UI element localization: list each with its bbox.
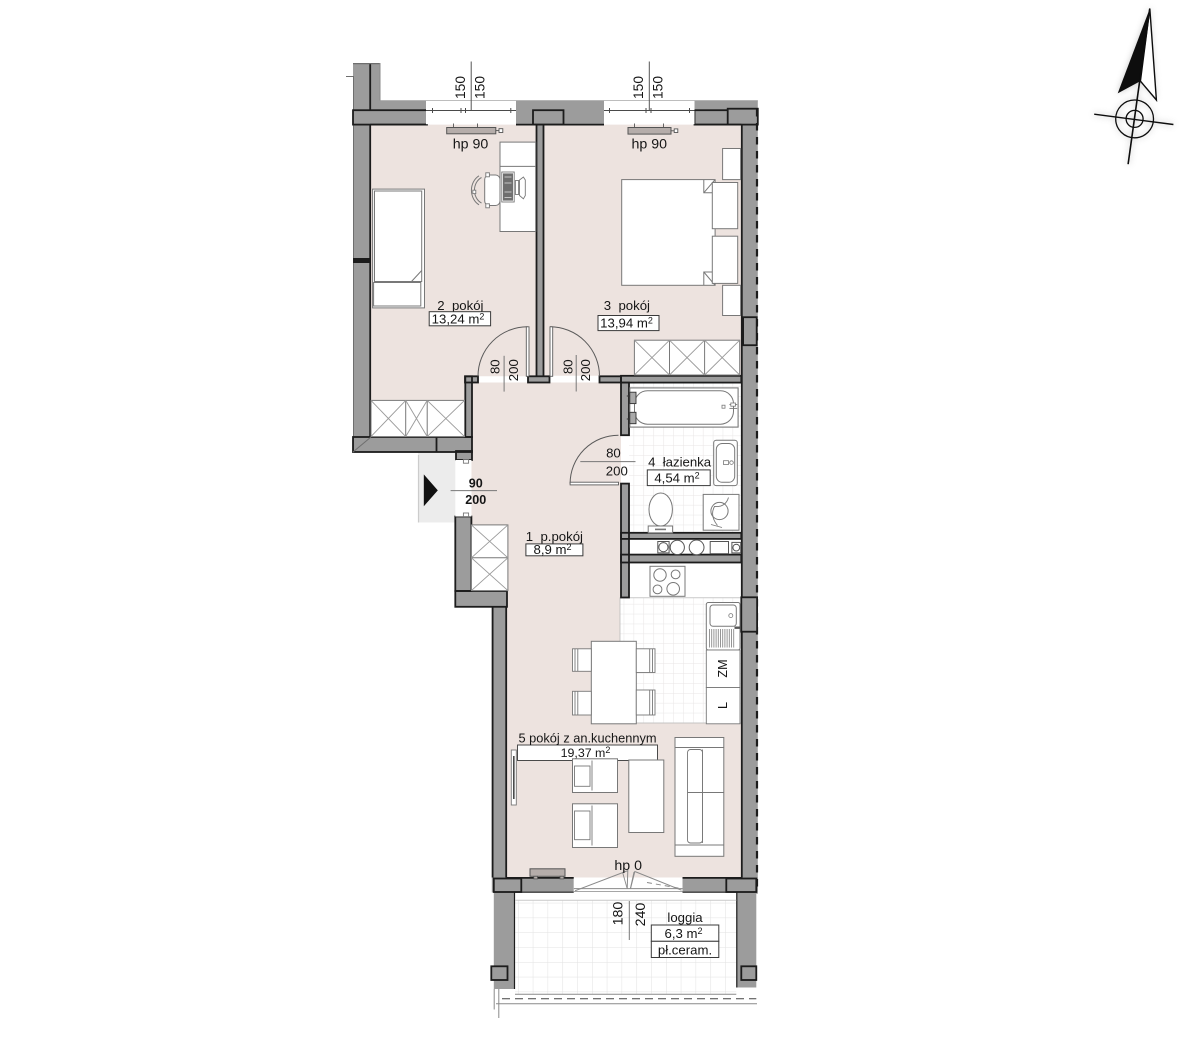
svg-text:200: 200: [506, 359, 521, 381]
svg-text:240: 240: [633, 903, 649, 927]
svg-text:90: 90: [469, 476, 483, 490]
svg-text:200: 200: [465, 493, 486, 507]
svg-text:150: 150: [473, 76, 488, 99]
svg-text:hp 0: hp 0: [614, 858, 642, 874]
svg-text:4 łazienka: 4 łazienka: [648, 454, 712, 469]
svg-text:3 pokój: 3 pokój: [604, 298, 650, 313]
svg-text:loggia: loggia: [667, 910, 703, 925]
svg-text:ZM: ZM: [716, 659, 730, 677]
svg-text:L: L: [716, 702, 730, 709]
svg-text:13,94 m2: 13,94 m2: [600, 316, 653, 331]
svg-text:hp 90: hp 90: [632, 137, 668, 153]
svg-text:pł.ceram.: pł.ceram.: [658, 942, 712, 957]
svg-text:8,9 m2: 8,9 m2: [534, 542, 572, 557]
svg-text:150: 150: [651, 76, 666, 99]
svg-text:19,37 m2: 19,37 m2: [561, 745, 611, 760]
svg-text:180: 180: [610, 902, 626, 926]
svg-text:4,54 m2: 4,54 m2: [654, 470, 699, 485]
svg-text:200: 200: [606, 463, 628, 478]
svg-text:80: 80: [606, 445, 621, 460]
svg-text:200: 200: [578, 359, 593, 381]
svg-text:6,3 m2: 6,3 m2: [665, 926, 703, 941]
svg-text:150: 150: [453, 76, 468, 99]
svg-text:5 pokój z an.kuchennym: 5 pokój z an.kuchennym: [519, 730, 657, 745]
svg-text:150: 150: [631, 76, 646, 99]
svg-text:80: 80: [487, 359, 502, 374]
svg-text:hp 90: hp 90: [453, 137, 489, 153]
svg-text:13,24 m2: 13,24 m2: [432, 312, 485, 327]
svg-text:80: 80: [560, 359, 575, 374]
